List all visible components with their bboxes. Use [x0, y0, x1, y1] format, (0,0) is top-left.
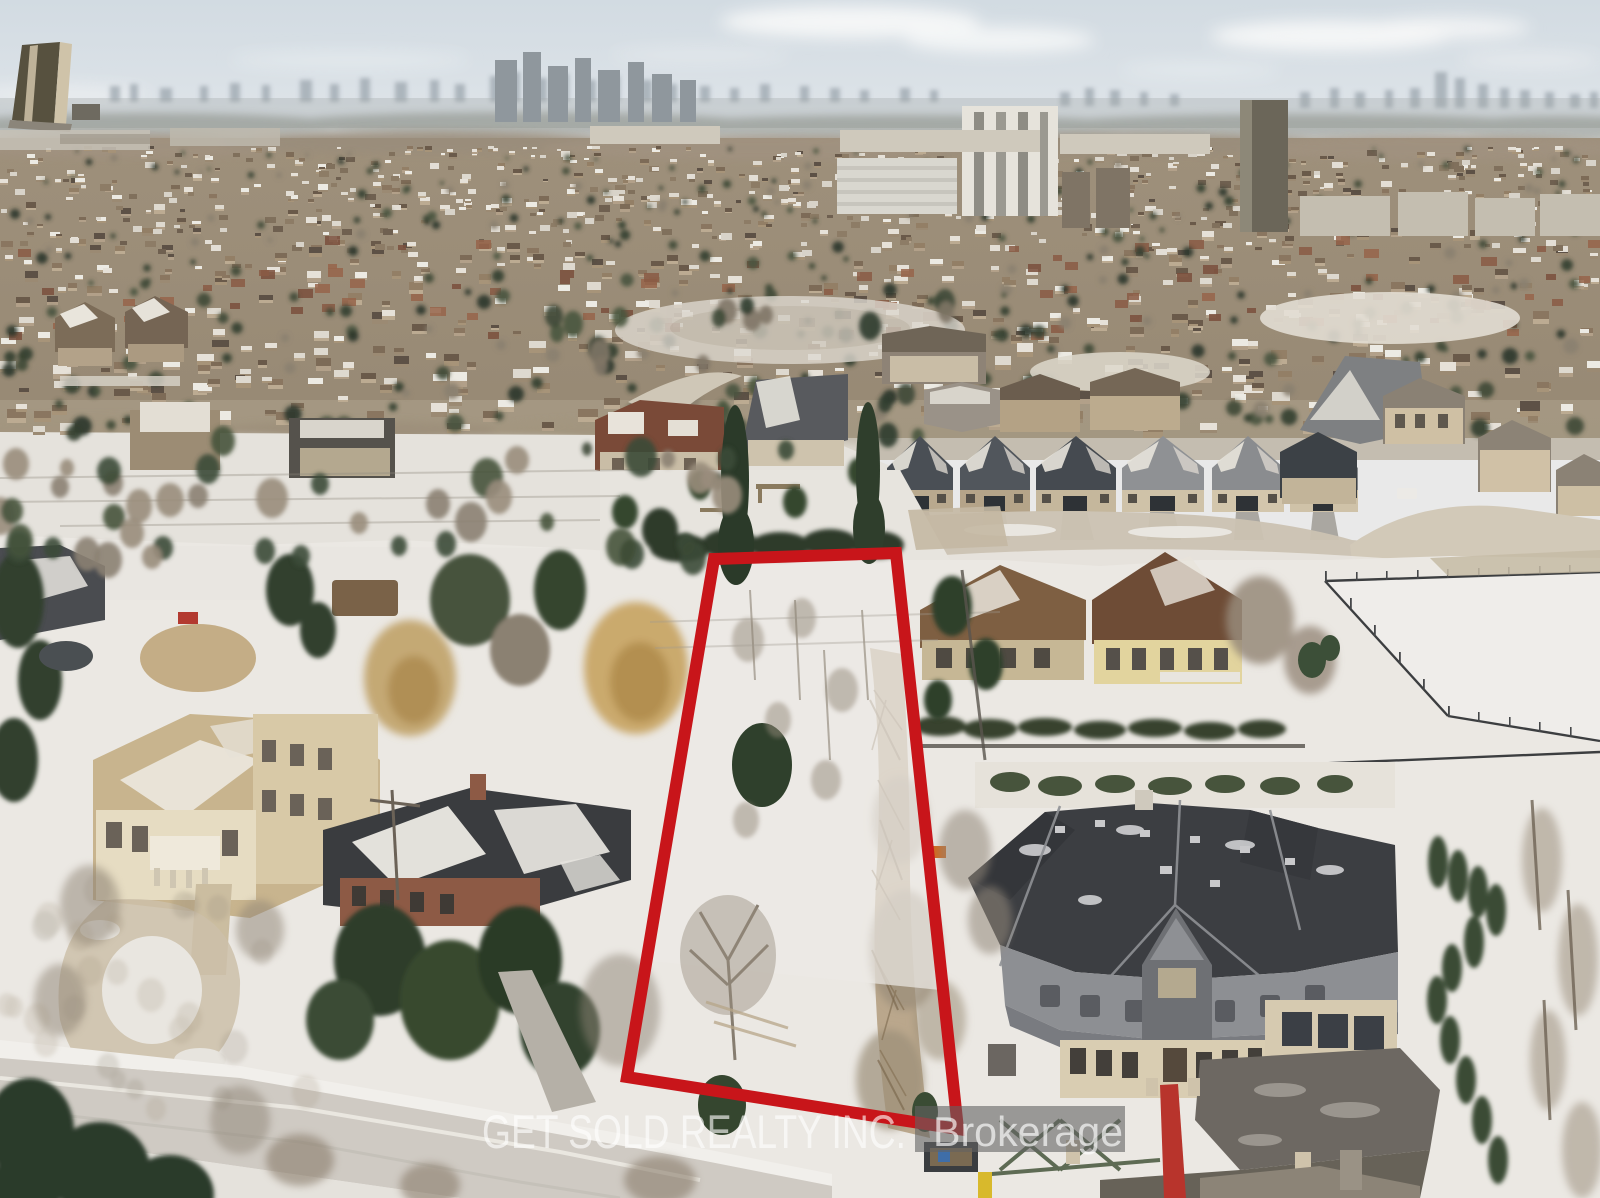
svg-text:Brokerage: Brokerage	[933, 1108, 1123, 1155]
svg-text:GET SOLD REALTY INC.: GET SOLD REALTY INC.	[482, 1105, 906, 1158]
